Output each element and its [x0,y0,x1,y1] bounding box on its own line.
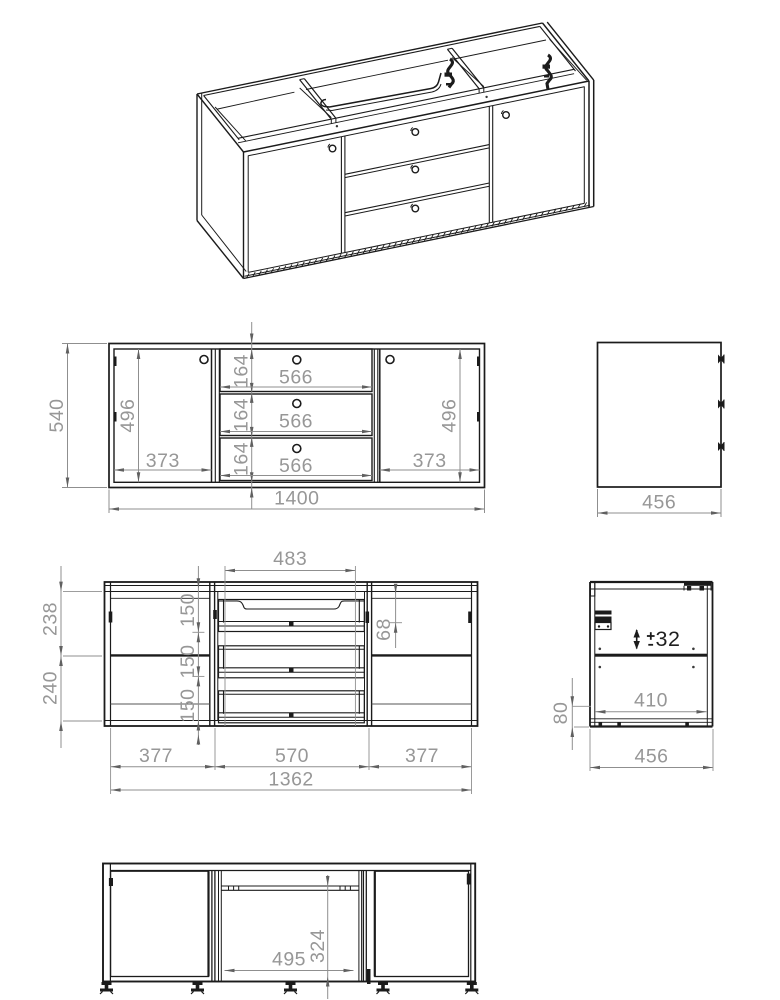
svg-text:456: 456 [634,746,668,768]
svg-text:496: 496 [117,399,139,433]
svg-text:164: 164 [231,354,253,388]
svg-text:1400: 1400 [274,488,319,510]
svg-text:240: 240 [40,671,62,705]
svg-text:483: 483 [273,548,307,570]
svg-text:164: 164 [231,442,253,476]
svg-text:570: 570 [275,745,309,767]
svg-text:566: 566 [279,411,313,433]
svg-text:324: 324 [307,929,329,963]
svg-text:150: 150 [177,688,199,722]
svg-text:32: 32 [656,627,681,651]
svg-text:373: 373 [413,450,447,472]
svg-text:377: 377 [139,745,173,767]
svg-text:566: 566 [279,367,313,389]
svg-text:164: 164 [231,398,253,432]
svg-text:1362: 1362 [268,769,313,791]
svg-text:238: 238 [40,602,62,636]
svg-text:496: 496 [439,399,461,433]
svg-text:373: 373 [146,450,180,472]
svg-text:80: 80 [550,702,572,725]
svg-text:566: 566 [279,455,313,477]
svg-text:540: 540 [46,398,68,432]
svg-text:410: 410 [634,690,668,712]
svg-text:150: 150 [177,644,199,678]
svg-text:68: 68 [373,618,395,641]
svg-text:150: 150 [177,593,199,627]
svg-text:377: 377 [405,745,439,767]
svg-text:456: 456 [642,492,676,514]
svg-text:495: 495 [272,949,306,971]
